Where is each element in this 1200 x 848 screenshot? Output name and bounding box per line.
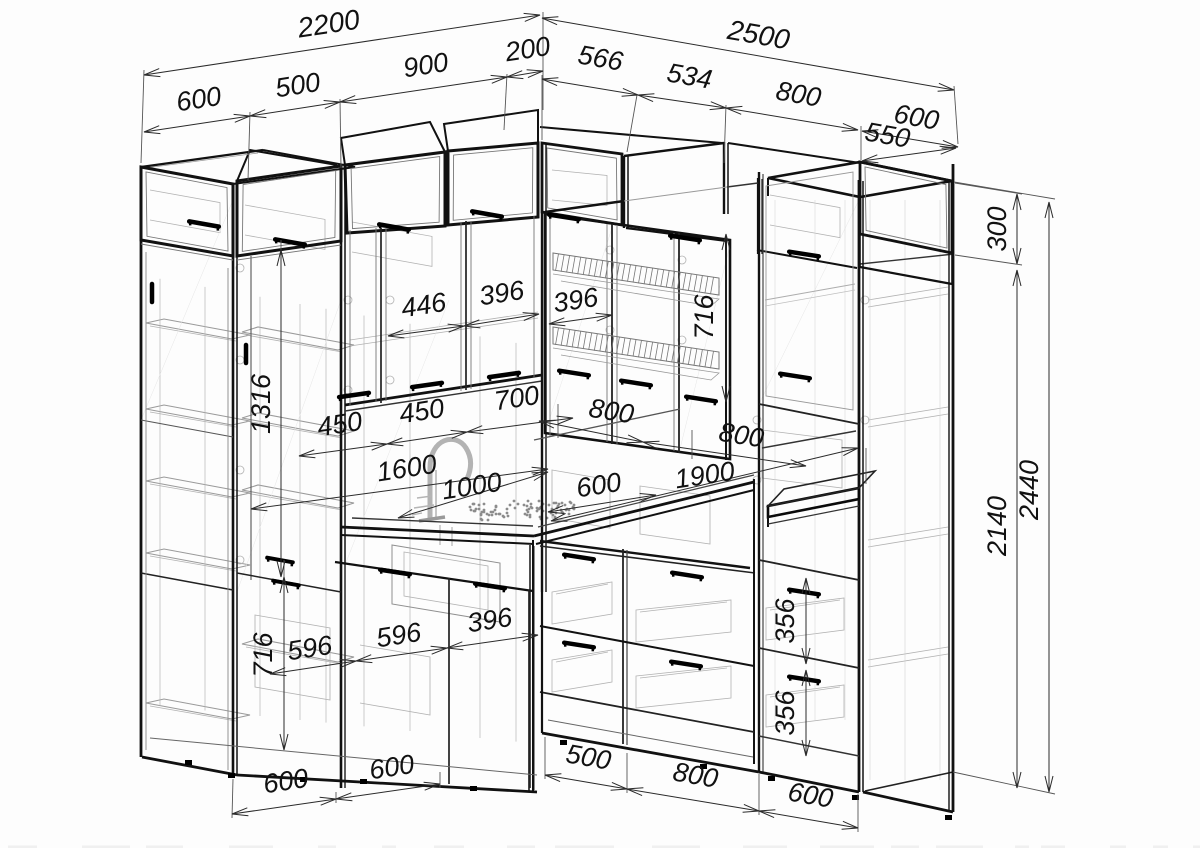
svg-text:300: 300: [982, 206, 1012, 251]
svg-text:2140: 2140: [982, 496, 1012, 557]
svg-text:2440: 2440: [1014, 460, 1044, 521]
svg-text:356: 356: [770, 597, 800, 643]
svg-text:356: 356: [770, 689, 800, 735]
svg-text:1316: 1316: [246, 373, 276, 434]
svg-text:716: 716: [689, 293, 719, 339]
svg-text:716: 716: [248, 631, 278, 677]
